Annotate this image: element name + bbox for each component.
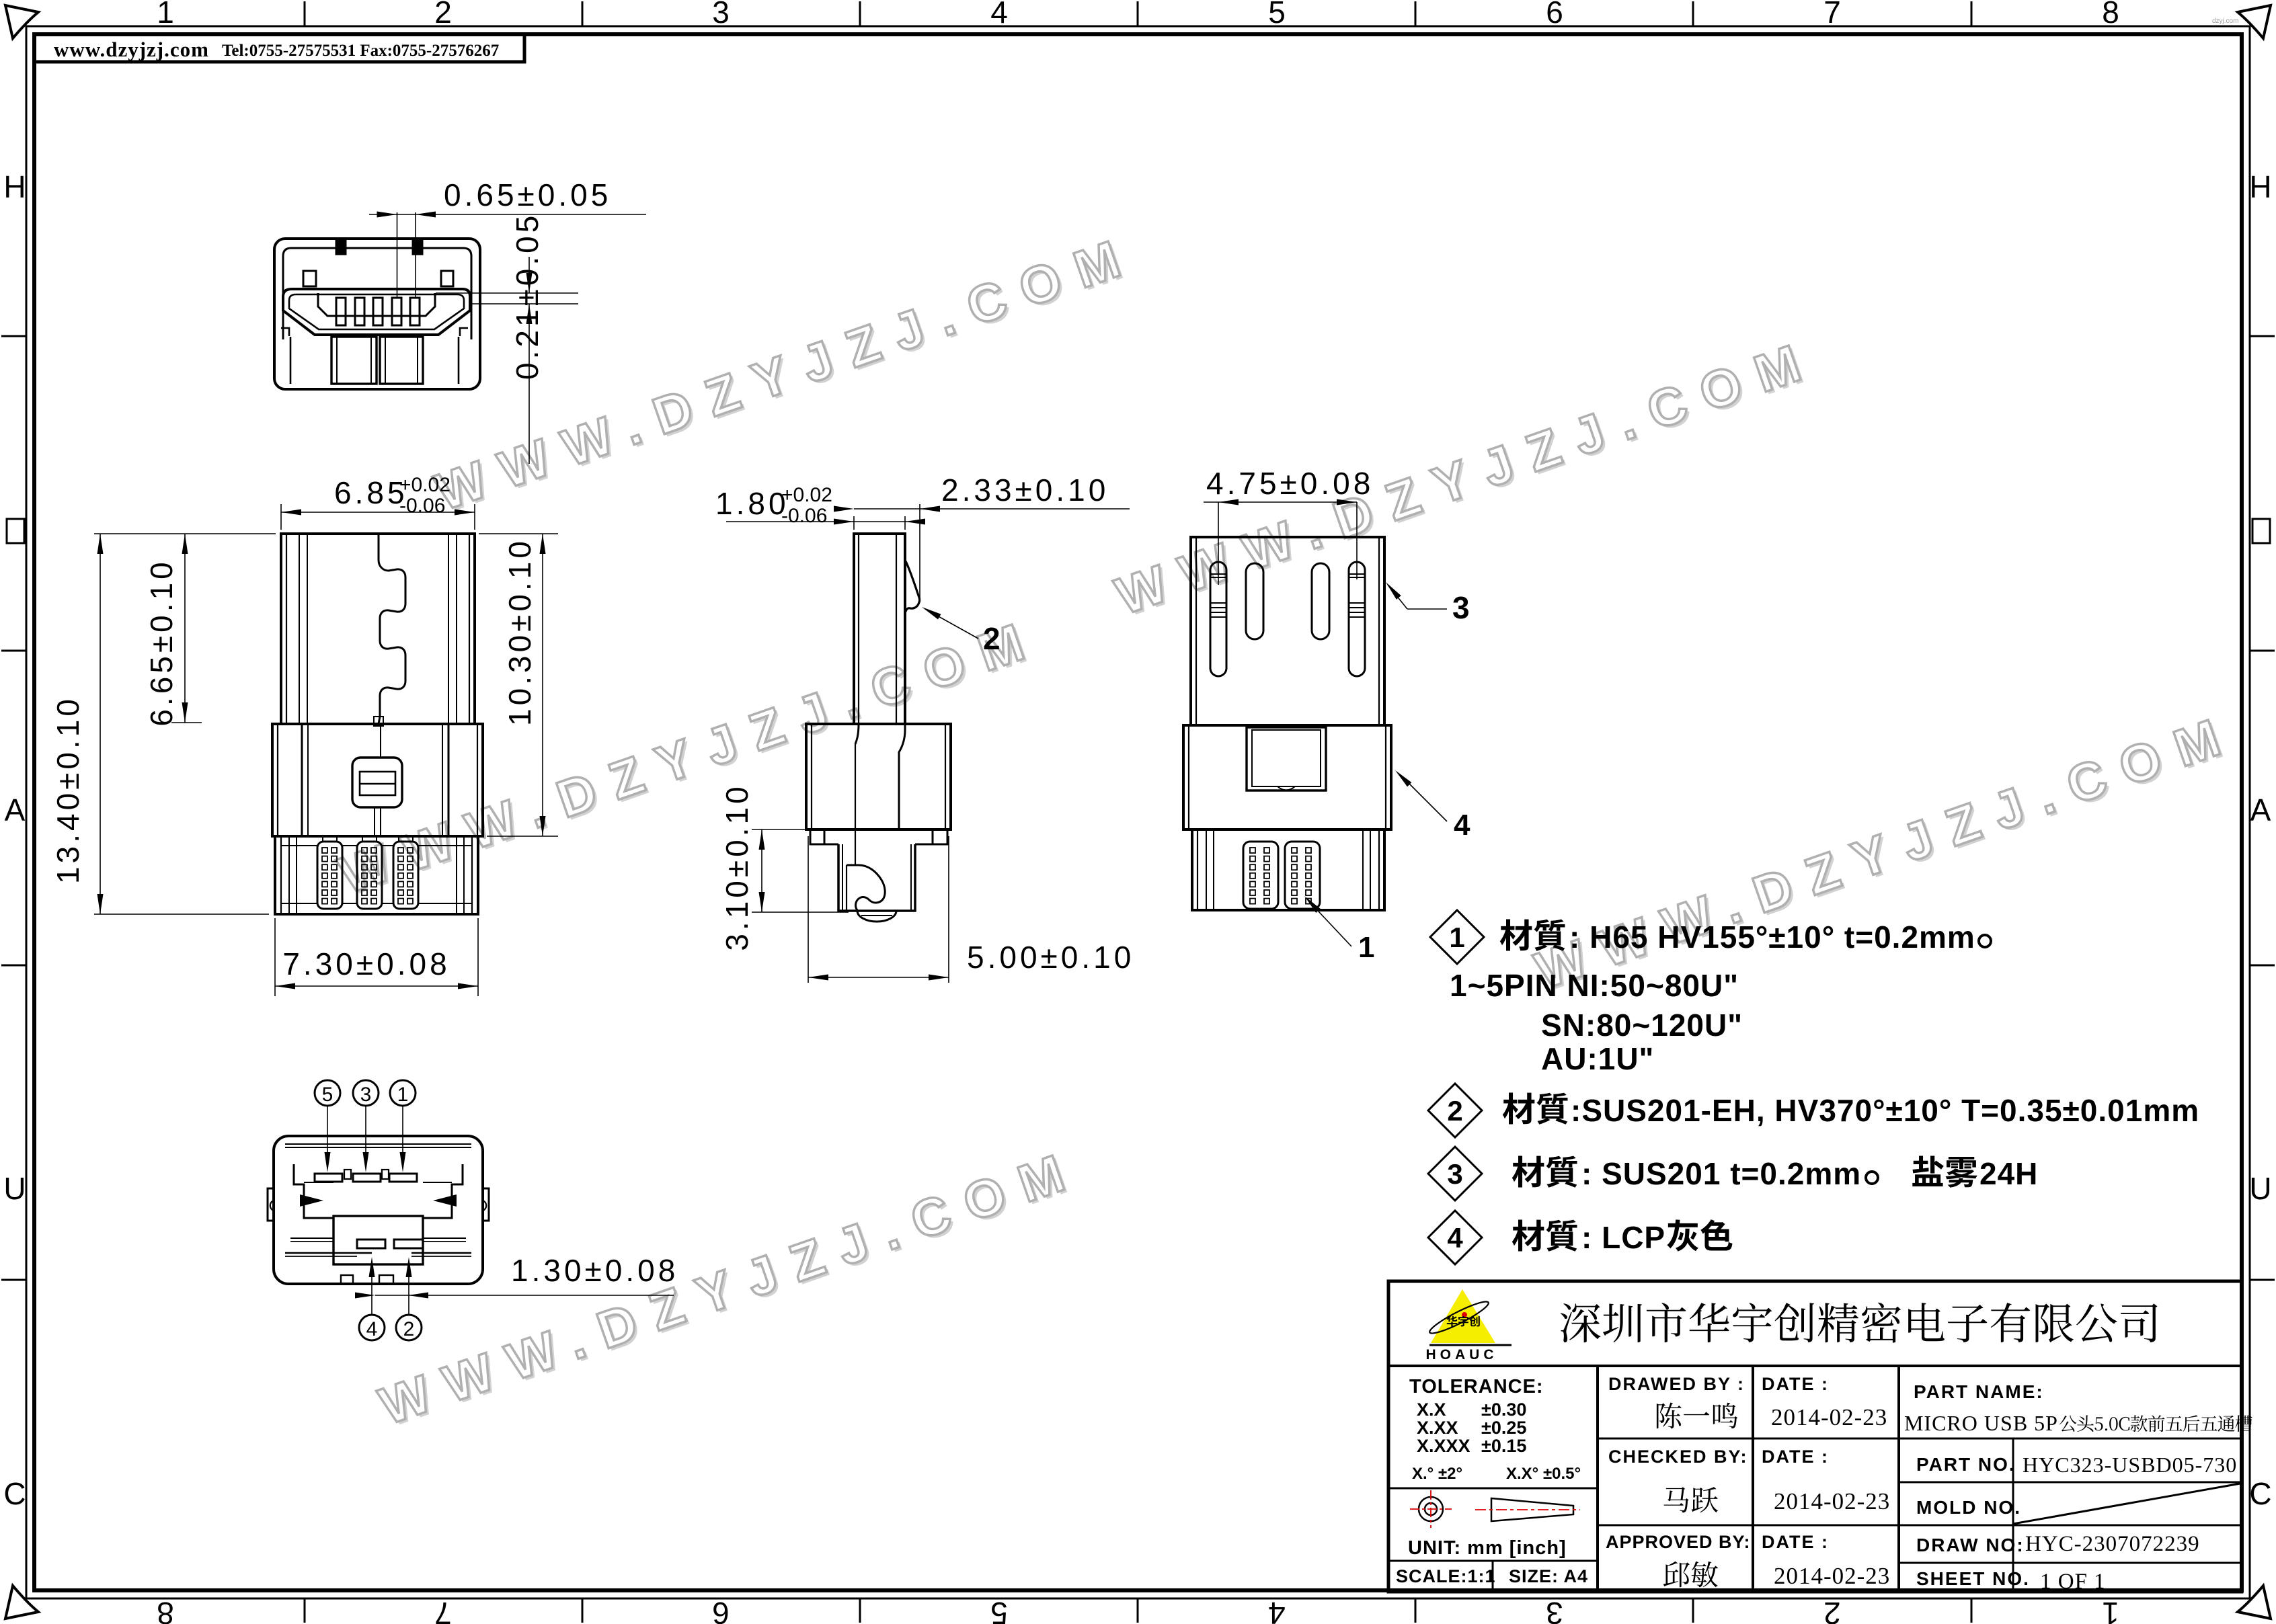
svg-text:A: A: [5, 793, 26, 827]
svg-text:4: 4: [366, 1318, 378, 1340]
svg-text:C: C: [3, 1476, 26, 1511]
svg-text:5: 5: [990, 1596, 1008, 1624]
svg-text:CHECKED BY:: CHECKED BY:: [1608, 1447, 1748, 1467]
svg-text:DRAWED BY :: DRAWED BY :: [1608, 1374, 1745, 1394]
svg-text:13.40±0.10: 13.40±0.10: [50, 696, 85, 884]
svg-text:6.65±0.10: 6.65±0.10: [144, 559, 179, 726]
svg-text:2: 2: [434, 0, 452, 30]
svg-text:1: 1: [2102, 1596, 2119, 1624]
svg-text:2014-02-23: 2014-02-23: [1771, 1404, 1887, 1430]
svg-text:1: 1: [1449, 922, 1464, 953]
svg-text:www.dzyjzj.com: www.dzyjzj.com: [54, 38, 209, 61]
svg-text:DATE :: DATE :: [1762, 1374, 1829, 1394]
svg-text:2014-02-23: 2014-02-23: [1774, 1563, 1890, 1589]
svg-text:2: 2: [1447, 1095, 1462, 1127]
svg-text:AU:1U": AU:1U": [1541, 1041, 1654, 1076]
svg-text:±0.30: ±0.30: [1481, 1399, 1526, 1420]
svg-text:4.75±0.08: 4.75±0.08: [1206, 466, 1374, 501]
svg-text:10.30±0.10: 10.30±0.10: [502, 538, 537, 726]
svg-text:7: 7: [434, 1596, 452, 1624]
svg-text:MICRO USB 5P: MICRO USB 5P: [1904, 1411, 2058, 1435]
svg-text:8: 8: [2102, 0, 2119, 30]
svg-text:C: C: [2249, 1476, 2271, 1511]
svg-text:2: 2: [1823, 1596, 1841, 1624]
svg-text:1~5PIN NI:50~80U": 1~5PIN NI:50~80U": [1450, 968, 1739, 1003]
svg-text:3: 3: [712, 0, 730, 30]
svg-text:H: H: [3, 169, 26, 204]
svg-text:Tel:0755-27575531 Fax:0755-27: Tel:0755-27575531 Fax:0755-27576267: [222, 42, 499, 60]
svg-text:3: 3: [1546, 1596, 1563, 1624]
svg-text:DATE :: DATE :: [1762, 1447, 1829, 1467]
svg-text:X.X: X.X: [1417, 1399, 1446, 1420]
svg-text:: LCP: : LCP: [1581, 1220, 1665, 1255]
svg-text:1.80: 1.80: [715, 486, 789, 521]
svg-text:X.X° ±0.5°: X.X° ±0.5°: [1506, 1465, 1581, 1483]
svg-text:4: 4: [1447, 1222, 1463, 1254]
svg-text::SUS201-EH, HV370°±10° T=0.35±: :SUS201-EH, HV370°±10° T=0.35±0.01mm: [1571, 1093, 2199, 1128]
svg-text:0.21±0.05: 0.21±0.05: [510, 212, 545, 380]
svg-text:SN:80~120U": SN:80~120U": [1541, 1008, 1743, 1043]
svg-text:5: 5: [322, 1084, 333, 1106]
svg-text:X.XXX: X.XXX: [1417, 1436, 1470, 1456]
svg-text:3: 3: [1447, 1158, 1462, 1190]
svg-text:6: 6: [712, 1596, 730, 1624]
svg-text:2: 2: [403, 1318, 415, 1340]
svg-text:6.85: 6.85: [334, 475, 408, 510]
svg-text:SIZE: A4: SIZE: A4: [1509, 1566, 1588, 1586]
svg-text:2.33±0.10: 2.33±0.10: [941, 473, 1109, 507]
svg-text:2: 2: [983, 621, 1000, 656]
svg-text:HYC323-USBD05-730: HYC323-USBD05-730: [2023, 1453, 2237, 1477]
svg-text:1: 1: [397, 1084, 409, 1106]
svg-text:UNIT: mm [inch]: UNIT: mm [inch]: [1408, 1537, 1567, 1559]
svg-text:U: U: [3, 1171, 26, 1206]
svg-text:+0.02: +0.02: [399, 474, 450, 496]
svg-text:TOLERANCE:: TOLERANCE:: [1409, 1376, 1544, 1397]
svg-text:6: 6: [1546, 0, 1563, 30]
svg-text:5.00±0.10: 5.00±0.10: [967, 940, 1134, 975]
svg-text:1 OF 1: 1 OF 1: [2040, 1570, 2106, 1594]
svg-text:1.30±0.08: 1.30±0.08: [511, 1253, 678, 1288]
svg-text:±0.15: ±0.15: [1481, 1436, 1526, 1456]
svg-text:HYC-2307072239: HYC-2307072239: [2025, 1532, 2200, 1556]
svg-text:DRAW NO:: DRAW NO:: [1916, 1535, 2025, 1555]
svg-text:X.XX: X.XX: [1417, 1418, 1458, 1438]
svg-text:-0.06: -0.06: [781, 505, 827, 527]
svg-text:MOLD NO.: MOLD NO.: [1916, 1497, 2021, 1518]
svg-text:7.30±0.08: 7.30±0.08: [282, 946, 450, 981]
svg-text:2014-02-23: 2014-02-23: [1774, 1488, 1890, 1514]
svg-text:-0.06: -0.06: [399, 495, 445, 517]
svg-text:8: 8: [157, 1596, 174, 1624]
svg-text:SCALE:1:1: SCALE:1:1: [1396, 1566, 1496, 1586]
svg-text:4: 4: [1268, 1596, 1286, 1624]
svg-text:U: U: [2249, 1171, 2271, 1206]
svg-text:1: 1: [1358, 931, 1374, 964]
svg-text:PART NAME:: PART NAME:: [1914, 1381, 2044, 1402]
svg-text:3: 3: [360, 1084, 372, 1106]
svg-text:dzyj.com: dzyj.com: [2212, 17, 2238, 25]
svg-text:PART NO.: PART NO.: [1916, 1454, 2016, 1475]
svg-text:: SUS201 t=0.2mm: : SUS201 t=0.2mm: [1581, 1156, 1861, 1191]
svg-text:HOAUC: HOAUC: [1426, 1347, 1498, 1363]
svg-text:7: 7: [1823, 0, 1841, 30]
svg-text:4: 4: [990, 0, 1008, 30]
svg-text:A: A: [2250, 793, 2271, 827]
svg-text:: H65 HV155°±10° t=0.2mm: : H65 HV155°±10° t=0.2mm: [1569, 920, 1975, 955]
svg-text:3.10±0.10: 3.10±0.10: [719, 783, 754, 950]
svg-text:24H: 24H: [1979, 1156, 2038, 1191]
svg-text:H: H: [2249, 169, 2271, 204]
svg-text:1: 1: [157, 0, 174, 30]
svg-text:APPROVED BY:: APPROVED BY:: [1606, 1532, 1751, 1552]
svg-text:5: 5: [1268, 0, 1286, 30]
svg-text:3: 3: [1452, 590, 1470, 625]
svg-text:SHEET NO.: SHEET NO.: [1916, 1568, 2030, 1589]
svg-text:4: 4: [1454, 809, 1470, 842]
svg-text:X.° ±2°: X.° ±2°: [1412, 1465, 1462, 1483]
svg-text:+0.02: +0.02: [781, 484, 832, 506]
svg-text:0.65±0.05: 0.65±0.05: [444, 177, 611, 212]
svg-text:±0.25: ±0.25: [1481, 1418, 1526, 1438]
svg-text:DATE :: DATE :: [1762, 1532, 1829, 1552]
